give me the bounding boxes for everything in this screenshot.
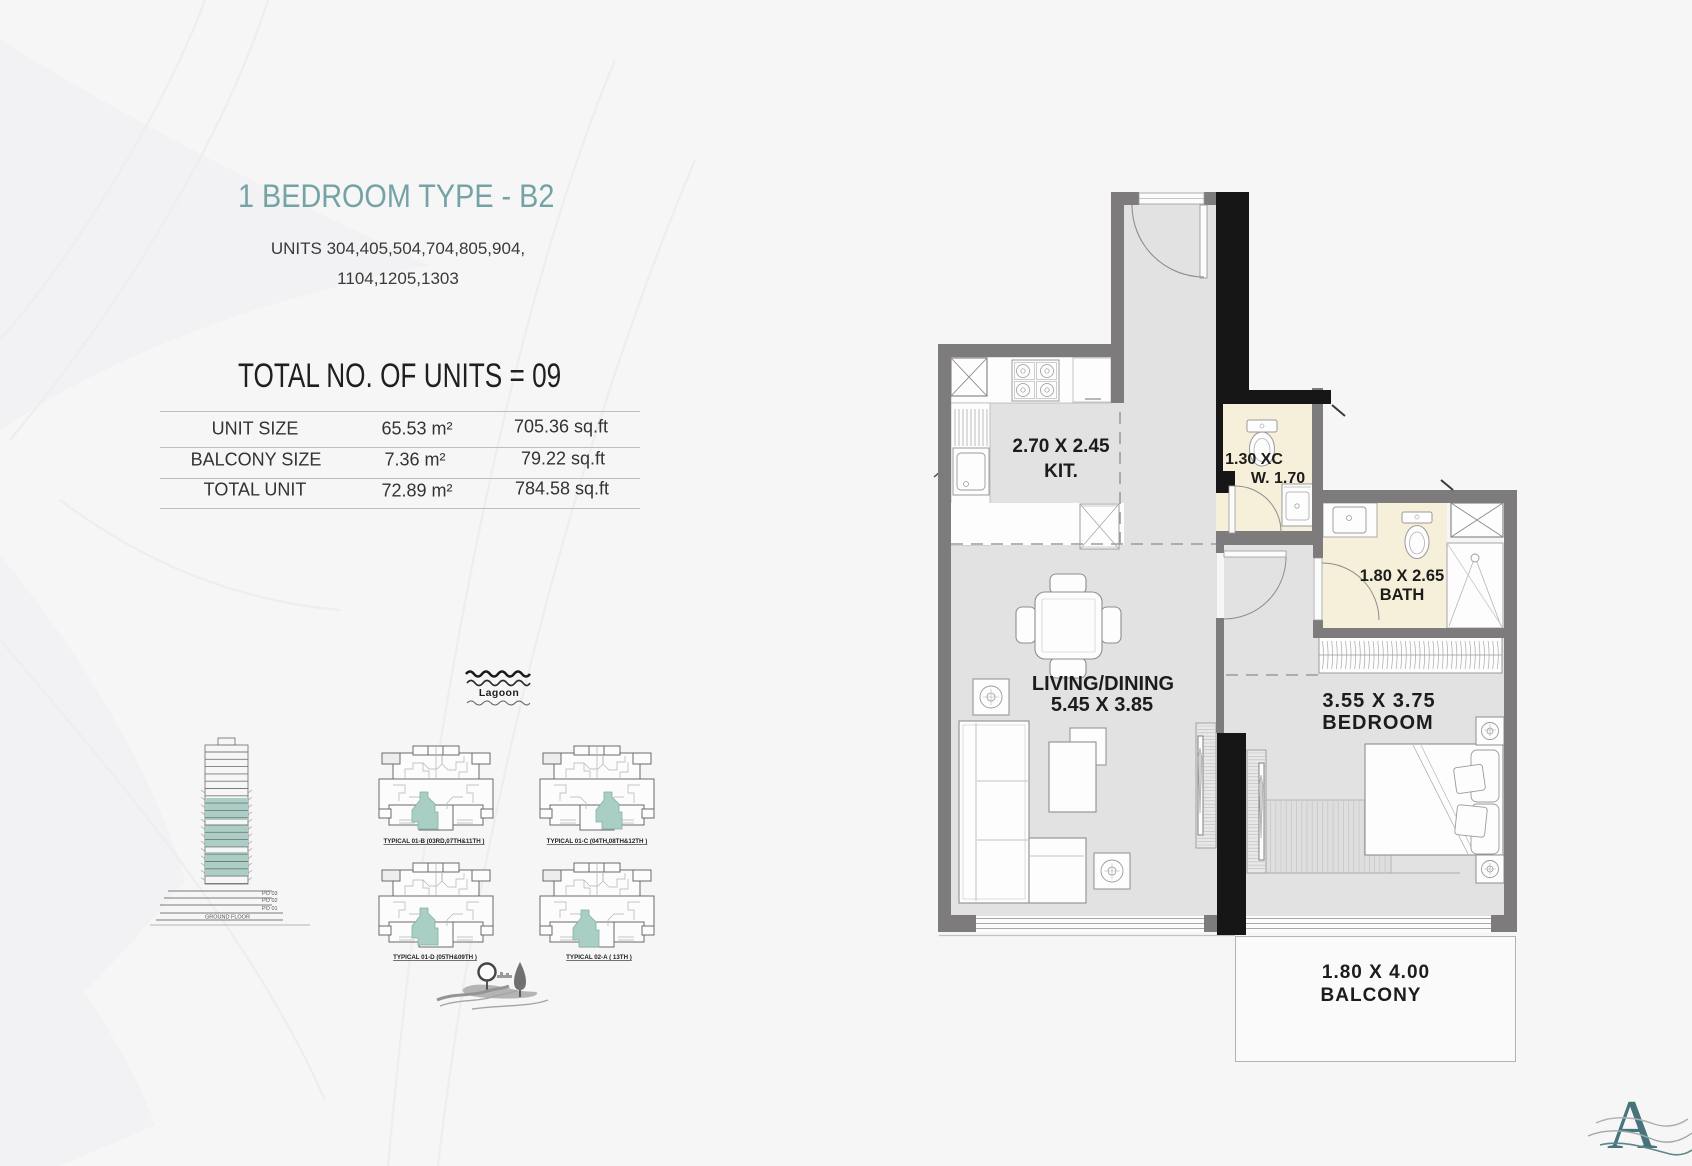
svg-text:BALCONY: BALCONY (1321, 985, 1422, 1006)
svg-text:PO 01: PO 01 (262, 906, 278, 912)
svg-text:TYPICAL 01-B (03RD,07TH&11TH ): TYPICAL 01-B (03RD,07TH&11TH ) (384, 838, 485, 845)
svg-text:W. 1.70: W. 1.70 (1251, 470, 1305, 487)
svg-text:PO 02: PO 02 (262, 898, 278, 904)
svg-text:2.70 X 2.45: 2.70 X 2.45 (1012, 436, 1110, 457)
svg-text:PO 03: PO 03 (262, 891, 278, 897)
svg-text:BEDROOM: BEDROOM (1322, 712, 1433, 734)
svg-text:GROUND FLOOR: GROUND FLOOR (205, 915, 250, 921)
svg-text:TYPICAL 02-A ( 13TH ): TYPICAL 02-A ( 13TH ) (566, 954, 632, 961)
svg-text:1.30 XC: 1.30 XC (1225, 451, 1283, 468)
svg-text:BATH: BATH (1380, 586, 1425, 604)
svg-text:3.55 X 3.75: 3.55 X 3.75 (1322, 690, 1435, 712)
svg-text:LIVING/DINING: LIVING/DINING (1032, 673, 1174, 695)
svg-text:KIT.: KIT. (1044, 461, 1078, 482)
svg-text:TYPICAL 01-D (05TH&09TH ): TYPICAL 01-D (05TH&09TH ) (393, 954, 477, 961)
svg-text:5.45 X 3.85: 5.45 X 3.85 (1051, 694, 1153, 716)
svg-text:TYPICAL 01-C (04TH,08TH&12TH ): TYPICAL 01-C (04TH,08TH&12TH ) (547, 838, 648, 845)
svg-text:1.80 X 4.00: 1.80 X 4.00 (1322, 962, 1430, 983)
svg-text:Lagoon: Lagoon (479, 687, 519, 699)
svg-text:A: A (1607, 1087, 1658, 1164)
svg-text:1.80 X 2.65: 1.80 X 2.65 (1360, 567, 1444, 585)
